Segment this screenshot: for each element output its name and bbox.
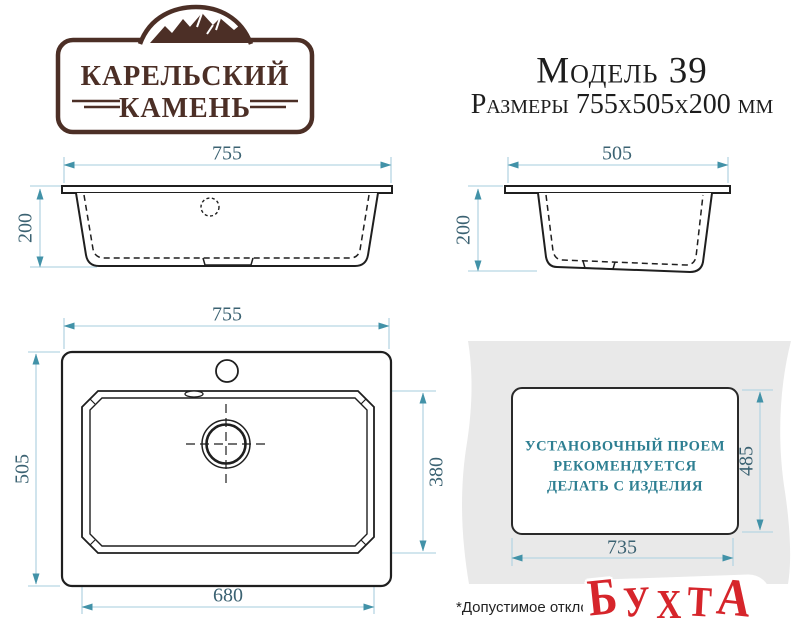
page-title-model: Модель 39 — [536, 50, 707, 93]
front-view — [30, 157, 392, 267]
top-depth-dimension: 505 — [12, 454, 35, 484]
cutout-width-dimension: 735 — [607, 537, 637, 560]
brand-name-line2: КАМЕНЬ — [119, 93, 251, 125]
page-subtitle-dimensions: Размеры 755х505х200 мм — [471, 89, 774, 121]
watermark-letter: Х — [656, 584, 681, 625]
side-depth-dimension: 505 — [602, 143, 632, 166]
side-height-dimension: 200 — [453, 215, 476, 245]
front-height-dimension: 200 — [15, 213, 38, 243]
cutout-note-line3: ДЕЛАТЬ С ИЗДЕЛИЯ — [547, 479, 703, 496]
watermark-letter: У — [623, 580, 652, 624]
faucet-hole — [216, 360, 238, 382]
cutout-depth-dimension: 485 — [736, 446, 759, 476]
bowl-depth-dimension: 380 — [426, 457, 449, 487]
bowl-rim-outer — [82, 391, 374, 553]
watermark-letter: Б — [585, 571, 620, 626]
top-width-dimension: 755 — [212, 304, 242, 327]
cutout-note-line1: УСТАНОВОЧНЫЙ ПРОЕМ — [525, 439, 725, 456]
bowl-width-dimension: 680 — [213, 585, 243, 608]
side-view — [468, 157, 730, 272]
cutout-note-line2: РЕКОМЕНДУЕТСЯ — [553, 459, 696, 476]
brand-name-line1: КАРЕЛЬСКИЙ — [81, 61, 290, 93]
overflow-slot — [185, 391, 203, 397]
watermark-logo: Б У Х Т А — [588, 571, 751, 624]
front-width-dimension: 755 — [212, 143, 242, 166]
watermark-letter: Т — [686, 580, 713, 624]
spec-sheet: КАРЕЛЬСКИЙ КАМЕНЬ Модель 39 Размеры 755х… — [0, 0, 810, 640]
top-view — [28, 318, 436, 614]
watermark-letter: А — [715, 571, 754, 627]
